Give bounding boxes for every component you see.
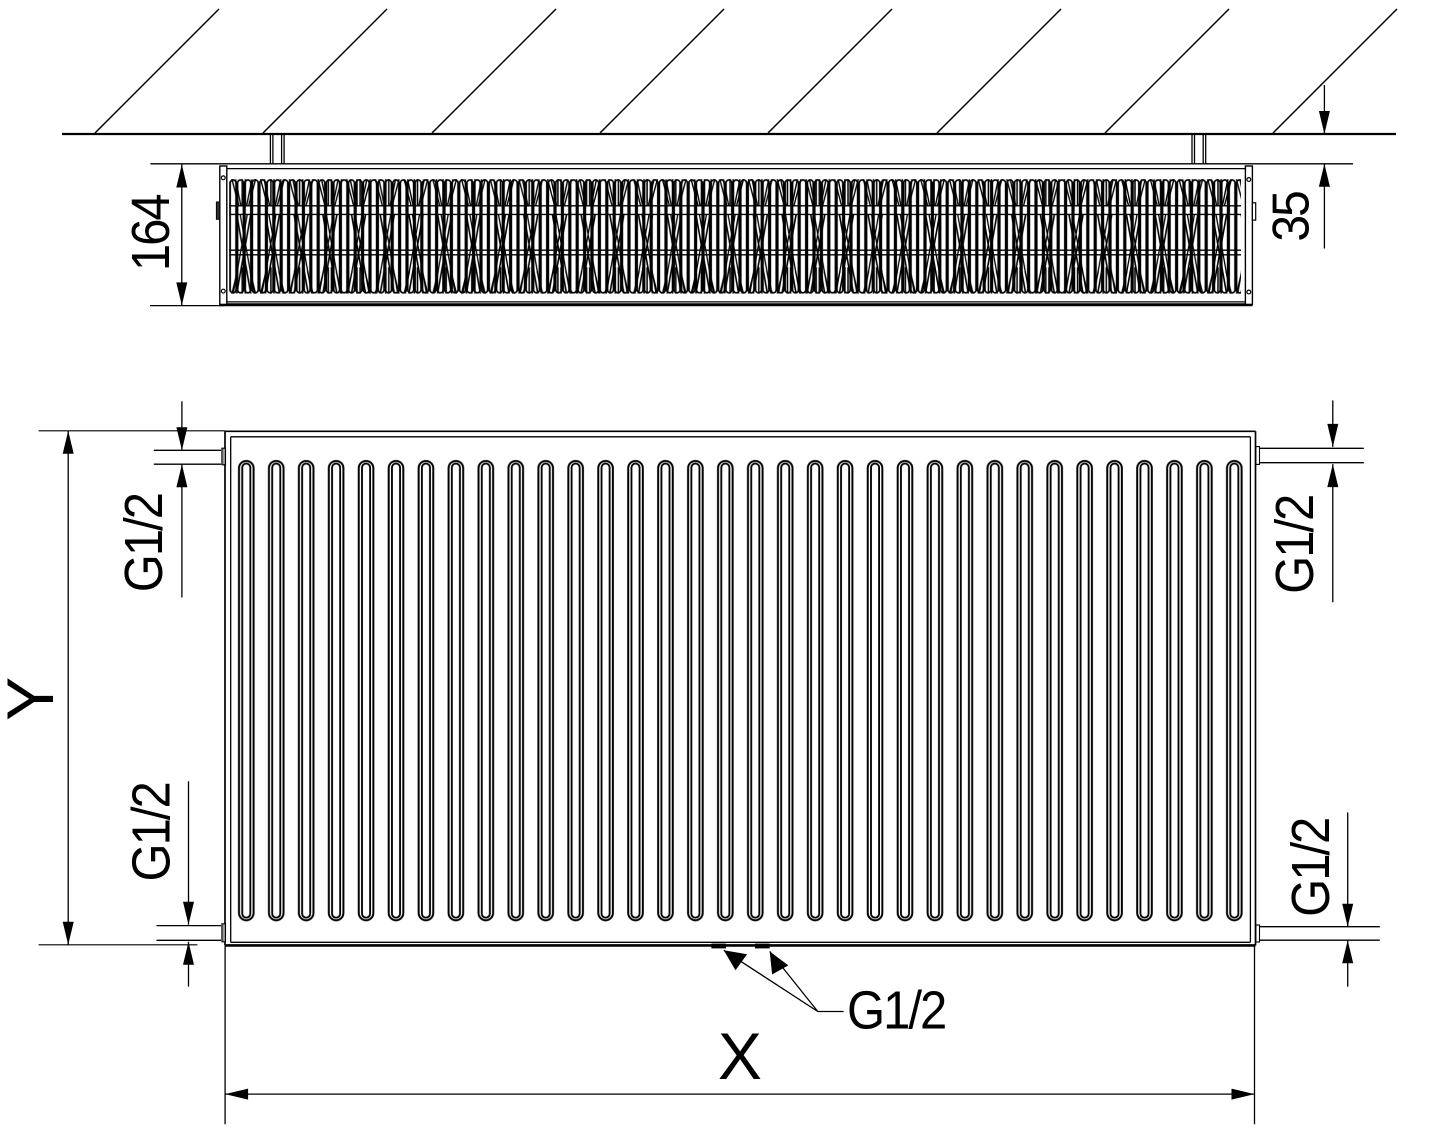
svg-text:35: 35 [1262,192,1320,242]
svg-text:164: 164 [120,194,181,271]
svg-text:G1/2: G1/2 [1264,495,1325,594]
svg-text:G1/2: G1/2 [113,494,174,593]
svg-text:Y: Y [0,677,67,721]
svg-text:X: X [718,1019,762,1093]
svg-text:G1/2: G1/2 [121,783,182,882]
svg-text:G1/2: G1/2 [1280,818,1341,917]
svg-text:G1/2: G1/2 [847,979,946,1040]
